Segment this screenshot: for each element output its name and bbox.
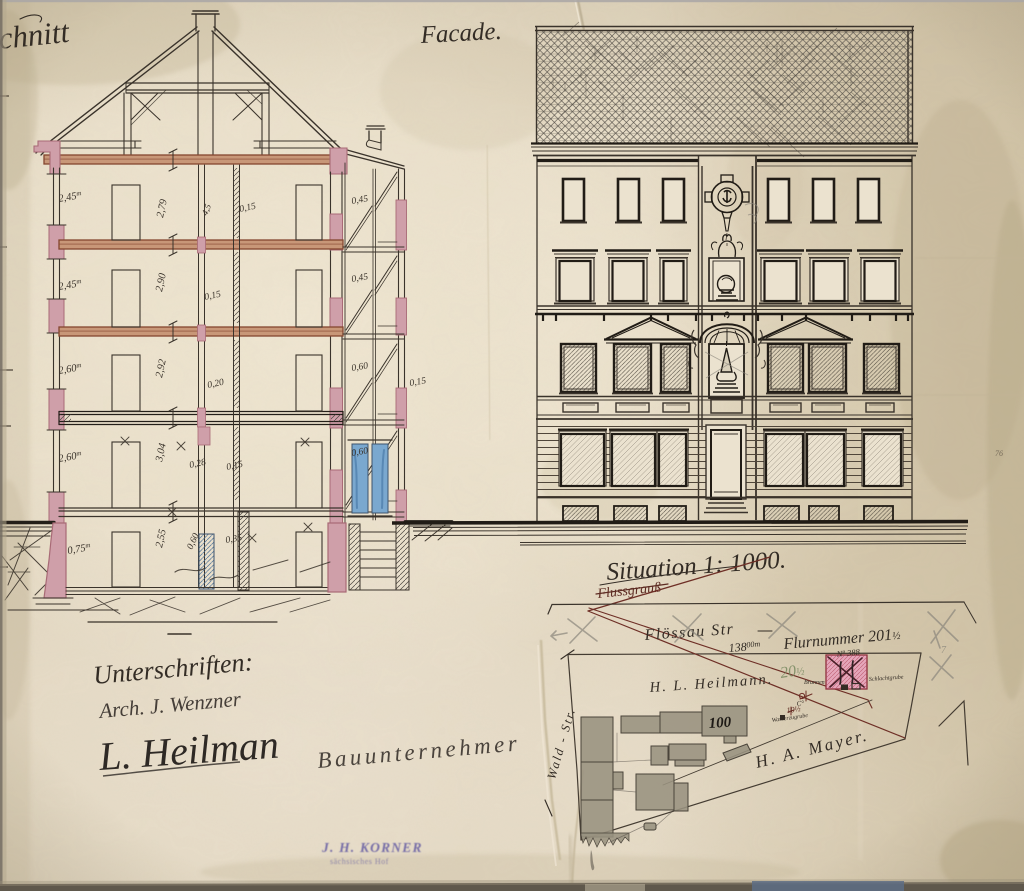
svg-text:Brunnen: Brunnen <box>804 680 825 686</box>
svg-text:76: 76 <box>995 449 1003 458</box>
svg-text:sächsisches Hof: sächsisches Hof <box>330 857 389 866</box>
svg-text:J. H. KORNER: J. H. KORNER <box>321 840 423 855</box>
svg-text:C°: C° <box>796 699 805 708</box>
svg-text:Facade.: Facade. <box>419 18 503 49</box>
svg-text:100: 100 <box>708 714 732 732</box>
